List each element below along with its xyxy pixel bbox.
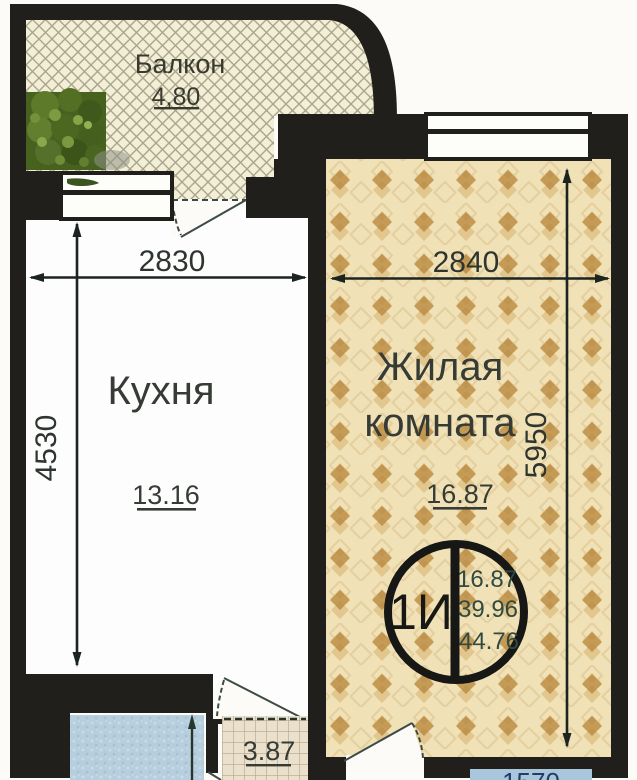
svg-text:2830: 2830 (139, 245, 206, 278)
svg-text:1570: 1570 (502, 767, 560, 780)
svg-text:44.76: 44.76 (459, 628, 519, 655)
svg-text:3.87: 3.87 (243, 736, 296, 766)
svg-text:39.96: 39.96 (458, 596, 518, 623)
svg-text:2840: 2840 (433, 246, 500, 279)
svg-text:Кухня: Кухня (107, 369, 214, 413)
svg-text:1И: 1И (389, 584, 453, 640)
svg-text:13.16: 13.16 (132, 480, 200, 510)
svg-text:4530: 4530 (30, 415, 63, 482)
svg-text:Жилая: Жилая (377, 345, 504, 389)
svg-text:Балкон: Балкон (135, 49, 226, 79)
svg-text:4,80: 4,80 (152, 83, 201, 111)
svg-text:5950: 5950 (520, 412, 553, 479)
svg-text:16.87: 16.87 (457, 566, 517, 593)
svg-text:комната: комната (364, 401, 516, 445)
svg-text:16.87: 16.87 (426, 479, 494, 509)
